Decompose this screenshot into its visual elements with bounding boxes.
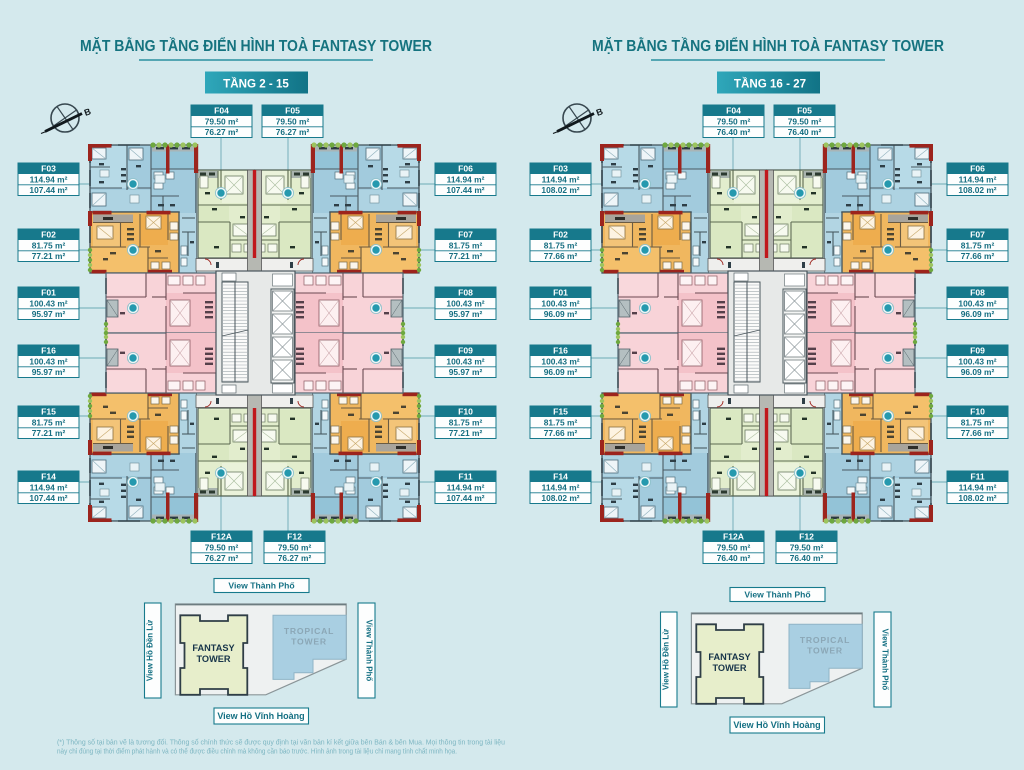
svg-text:79.50 m²: 79.50 m²	[205, 116, 239, 126]
svg-text:F03: F03	[41, 164, 56, 174]
svg-text:76.27 m²: 76.27 m²	[205, 127, 239, 137]
svg-text:107.44 m²: 107.44 m²	[446, 185, 484, 195]
svg-text:F12: F12	[799, 532, 814, 542]
svg-text:79.50 m²: 79.50 m²	[717, 542, 751, 552]
svg-text:79.50 m²: 79.50 m²	[790, 542, 824, 552]
svg-text:F09: F09	[970, 346, 985, 356]
svg-text:76.40 m²: 76.40 m²	[717, 127, 751, 137]
svg-text:81.75 m²: 81.75 m²	[544, 240, 578, 250]
svg-text:79.50 m²: 79.50 m²	[788, 116, 822, 126]
svg-text:F08: F08	[458, 288, 473, 298]
svg-text:114.94 m²: 114.94 m²	[959, 174, 997, 184]
svg-text:96.09 m²: 96.09 m²	[544, 367, 578, 377]
svg-text:100.43 m²: 100.43 m²	[958, 298, 996, 308]
svg-text:F12A: F12A	[723, 532, 744, 542]
svg-text:114.94 m²: 114.94 m²	[959, 482, 997, 492]
svg-text:76.27 m²: 76.27 m²	[205, 553, 239, 563]
svg-text:96.09 m²: 96.09 m²	[544, 309, 578, 319]
svg-text:TẦNG 2 - 15: TẦNG 2 - 15	[223, 77, 289, 90]
svg-text:F12: F12	[287, 532, 302, 542]
svg-text:114.94 m²: 114.94 m²	[542, 482, 580, 492]
svg-text:79.50 m²: 79.50 m²	[205, 542, 239, 552]
svg-text:F07: F07	[458, 230, 473, 240]
svg-text:114.94 m²: 114.94 m²	[542, 174, 580, 184]
svg-text:F14: F14	[553, 472, 568, 482]
svg-text:108.02 m²: 108.02 m²	[541, 493, 579, 503]
svg-text:81.75 m²: 81.75 m²	[449, 417, 483, 427]
svg-text:77.21 m²: 77.21 m²	[449, 251, 483, 261]
svg-text:100.43 m²: 100.43 m²	[29, 356, 67, 366]
svg-text:F07: F07	[970, 230, 985, 240]
svg-text:F03: F03	[553, 164, 568, 174]
svg-text:100.43 m²: 100.43 m²	[541, 356, 579, 366]
svg-text:108.02 m²: 108.02 m²	[541, 185, 579, 195]
svg-text:F14: F14	[41, 472, 56, 482]
svg-text:79.50 m²: 79.50 m²	[717, 116, 751, 126]
svg-text:F04: F04	[214, 106, 229, 116]
svg-text:95.97 m²: 95.97 m²	[449, 367, 483, 377]
svg-text:F04: F04	[726, 106, 741, 116]
svg-text:76.40 m²: 76.40 m²	[788, 127, 822, 137]
svg-text:100.43 m²: 100.43 m²	[29, 298, 67, 308]
svg-text:100.43 m²: 100.43 m²	[446, 356, 484, 366]
svg-text:96.09 m²: 96.09 m²	[961, 309, 995, 319]
svg-text:107.44 m²: 107.44 m²	[29, 185, 67, 195]
svg-text:77.21 m²: 77.21 m²	[32, 428, 66, 438]
svg-text:96.09 m²: 96.09 m²	[961, 367, 995, 377]
svg-text:114.94 m²: 114.94 m²	[447, 174, 485, 184]
svg-text:100.43 m²: 100.43 m²	[446, 298, 484, 308]
svg-text:F06: F06	[458, 164, 473, 174]
svg-text:F02: F02	[41, 230, 56, 240]
svg-text:114.94 m²: 114.94 m²	[447, 482, 485, 492]
svg-text:76.27 m²: 76.27 m²	[276, 127, 310, 137]
svg-text:(*) Thông số tại bản vẽ là tươ: (*) Thông số tại bản vẽ là tương đối. Th…	[57, 738, 505, 747]
svg-text:76.40 m²: 76.40 m²	[717, 553, 751, 563]
svg-text:F11: F11	[970, 472, 985, 482]
svg-text:F06: F06	[970, 164, 985, 174]
svg-text:TẦNG 16 - 27: TẦNG 16 - 27	[734, 77, 806, 90]
svg-text:F16: F16	[553, 346, 568, 356]
svg-text:108.02 m²: 108.02 m²	[958, 493, 996, 503]
svg-text:F10: F10	[970, 407, 985, 417]
svg-text:F15: F15	[553, 407, 568, 417]
svg-text:F01: F01	[553, 288, 568, 298]
svg-text:107.44 m²: 107.44 m²	[446, 493, 484, 503]
svg-text:79.50 m²: 79.50 m²	[278, 542, 312, 552]
svg-text:F05: F05	[797, 106, 812, 116]
svg-text:95.97 m²: 95.97 m²	[32, 367, 66, 377]
svg-text:F15: F15	[41, 407, 56, 417]
svg-text:107.44 m²: 107.44 m²	[29, 493, 67, 503]
svg-text:81.75 m²: 81.75 m²	[449, 240, 483, 250]
svg-text:81.75 m²: 81.75 m²	[961, 240, 995, 250]
svg-text:77.21 m²: 77.21 m²	[32, 251, 66, 261]
svg-text:100.43 m²: 100.43 m²	[541, 298, 579, 308]
svg-text:F10: F10	[458, 407, 473, 417]
svg-text:76.40 m²: 76.40 m²	[790, 553, 824, 563]
svg-text:81.75 m²: 81.75 m²	[32, 417, 66, 427]
svg-text:77.66 m²: 77.66 m²	[961, 251, 995, 261]
svg-text:79.50 m²: 79.50 m²	[276, 116, 310, 126]
svg-text:81.75 m²: 81.75 m²	[544, 417, 578, 427]
svg-text:F08: F08	[970, 288, 985, 298]
svg-text:100.43 m²: 100.43 m²	[958, 356, 996, 366]
svg-text:F11: F11	[458, 472, 473, 482]
svg-text:77.66 m²: 77.66 m²	[961, 428, 995, 438]
svg-text:F12A: F12A	[211, 532, 232, 542]
svg-text:F05: F05	[285, 106, 300, 116]
svg-text:F09: F09	[458, 346, 473, 356]
svg-text:95.97 m²: 95.97 m²	[449, 309, 483, 319]
svg-text:F01: F01	[41, 288, 56, 298]
svg-text:114.94 m²: 114.94 m²	[30, 174, 68, 184]
svg-text:76.27 m²: 76.27 m²	[278, 553, 312, 563]
svg-text:108.02 m²: 108.02 m²	[958, 185, 996, 195]
svg-text:77.66 m²: 77.66 m²	[544, 251, 578, 261]
svg-text:95.97 m²: 95.97 m²	[32, 309, 66, 319]
svg-text:81.75 m²: 81.75 m²	[32, 240, 66, 250]
svg-text:114.94 m²: 114.94 m²	[30, 482, 68, 492]
svg-text:F02: F02	[553, 230, 568, 240]
svg-text:77.66 m²: 77.66 m²	[544, 428, 578, 438]
svg-text:F16: F16	[41, 346, 56, 356]
svg-text:này chỉ đúng tại thời điểm phá: này chỉ đúng tại thời điểm phát hành và …	[57, 747, 457, 756]
svg-text:81.75 m²: 81.75 m²	[961, 417, 995, 427]
svg-text:77.21 m²: 77.21 m²	[449, 428, 483, 438]
